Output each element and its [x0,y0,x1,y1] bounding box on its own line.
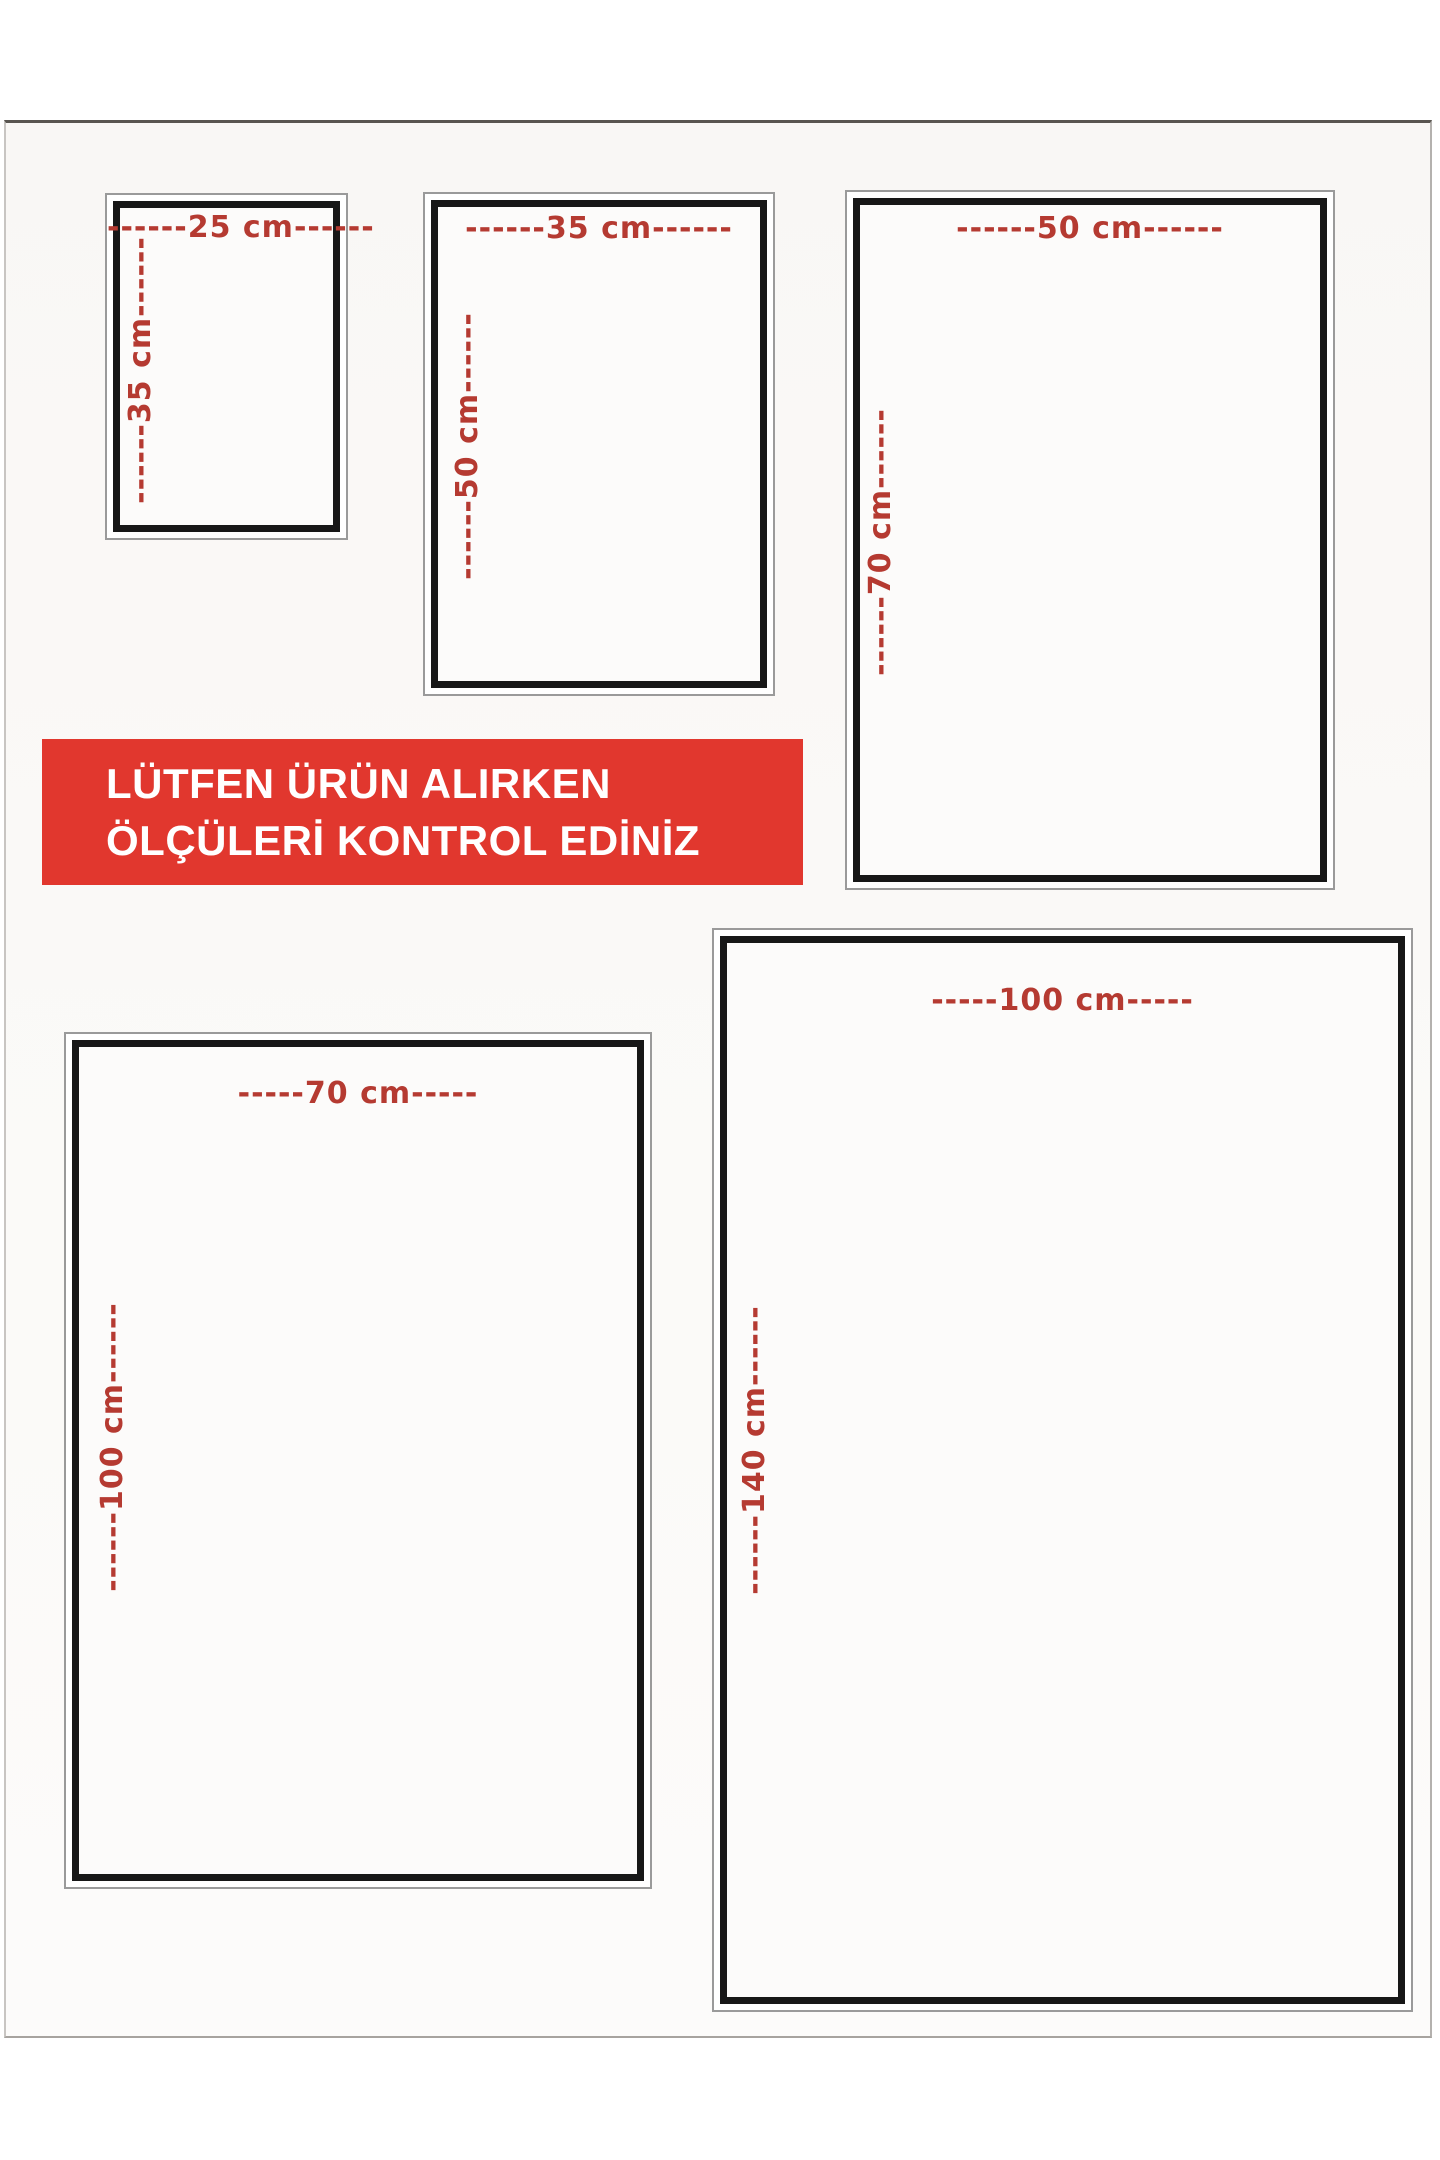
width-dimension-label: ------35 cm------ [425,212,773,246]
height-dimension-label: ------35 cm------ [124,236,158,504]
size-box-25x35: ------25 cm------ ------35 cm------ [105,193,348,540]
size-box-50x70: ------50 cm------ ------70 cm------ [845,190,1335,890]
notice-banner: LÜTFEN ÜRÜN ALIRKEN ÖLÇÜLERİ KONTROL EDİ… [42,739,803,885]
size-box-100x140: -----100 cm----- ------140 cm------ [712,928,1413,2012]
notice-banner-line2: ÖLÇÜLERİ KONTROL EDİNİZ [106,812,803,869]
size-box-inner-frame [72,1040,644,1881]
size-chart-image: ------25 cm------ ------35 cm------ ----… [0,0,1440,2160]
size-box-35x50: ------35 cm------ ------50 cm------ [423,192,775,696]
width-dimension-label: ------50 cm------ [847,212,1333,246]
notice-banner-line1: LÜTFEN ÜRÜN ALIRKEN [106,755,803,812]
height-dimension-label: ------70 cm------ [864,408,898,676]
height-dimension-label: ------100 cm------ [96,1302,130,1592]
size-box-70x100: -----70 cm----- ------100 cm------ [64,1032,652,1889]
width-dimension-label: -----100 cm----- [714,984,1411,1018]
size-box-inner-frame [853,198,1327,882]
height-dimension-label: ------50 cm------ [451,312,485,580]
height-dimension-label: ------140 cm------ [738,1305,772,1595]
size-box-inner-frame [720,936,1405,2004]
width-dimension-label: -----70 cm----- [66,1077,650,1111]
